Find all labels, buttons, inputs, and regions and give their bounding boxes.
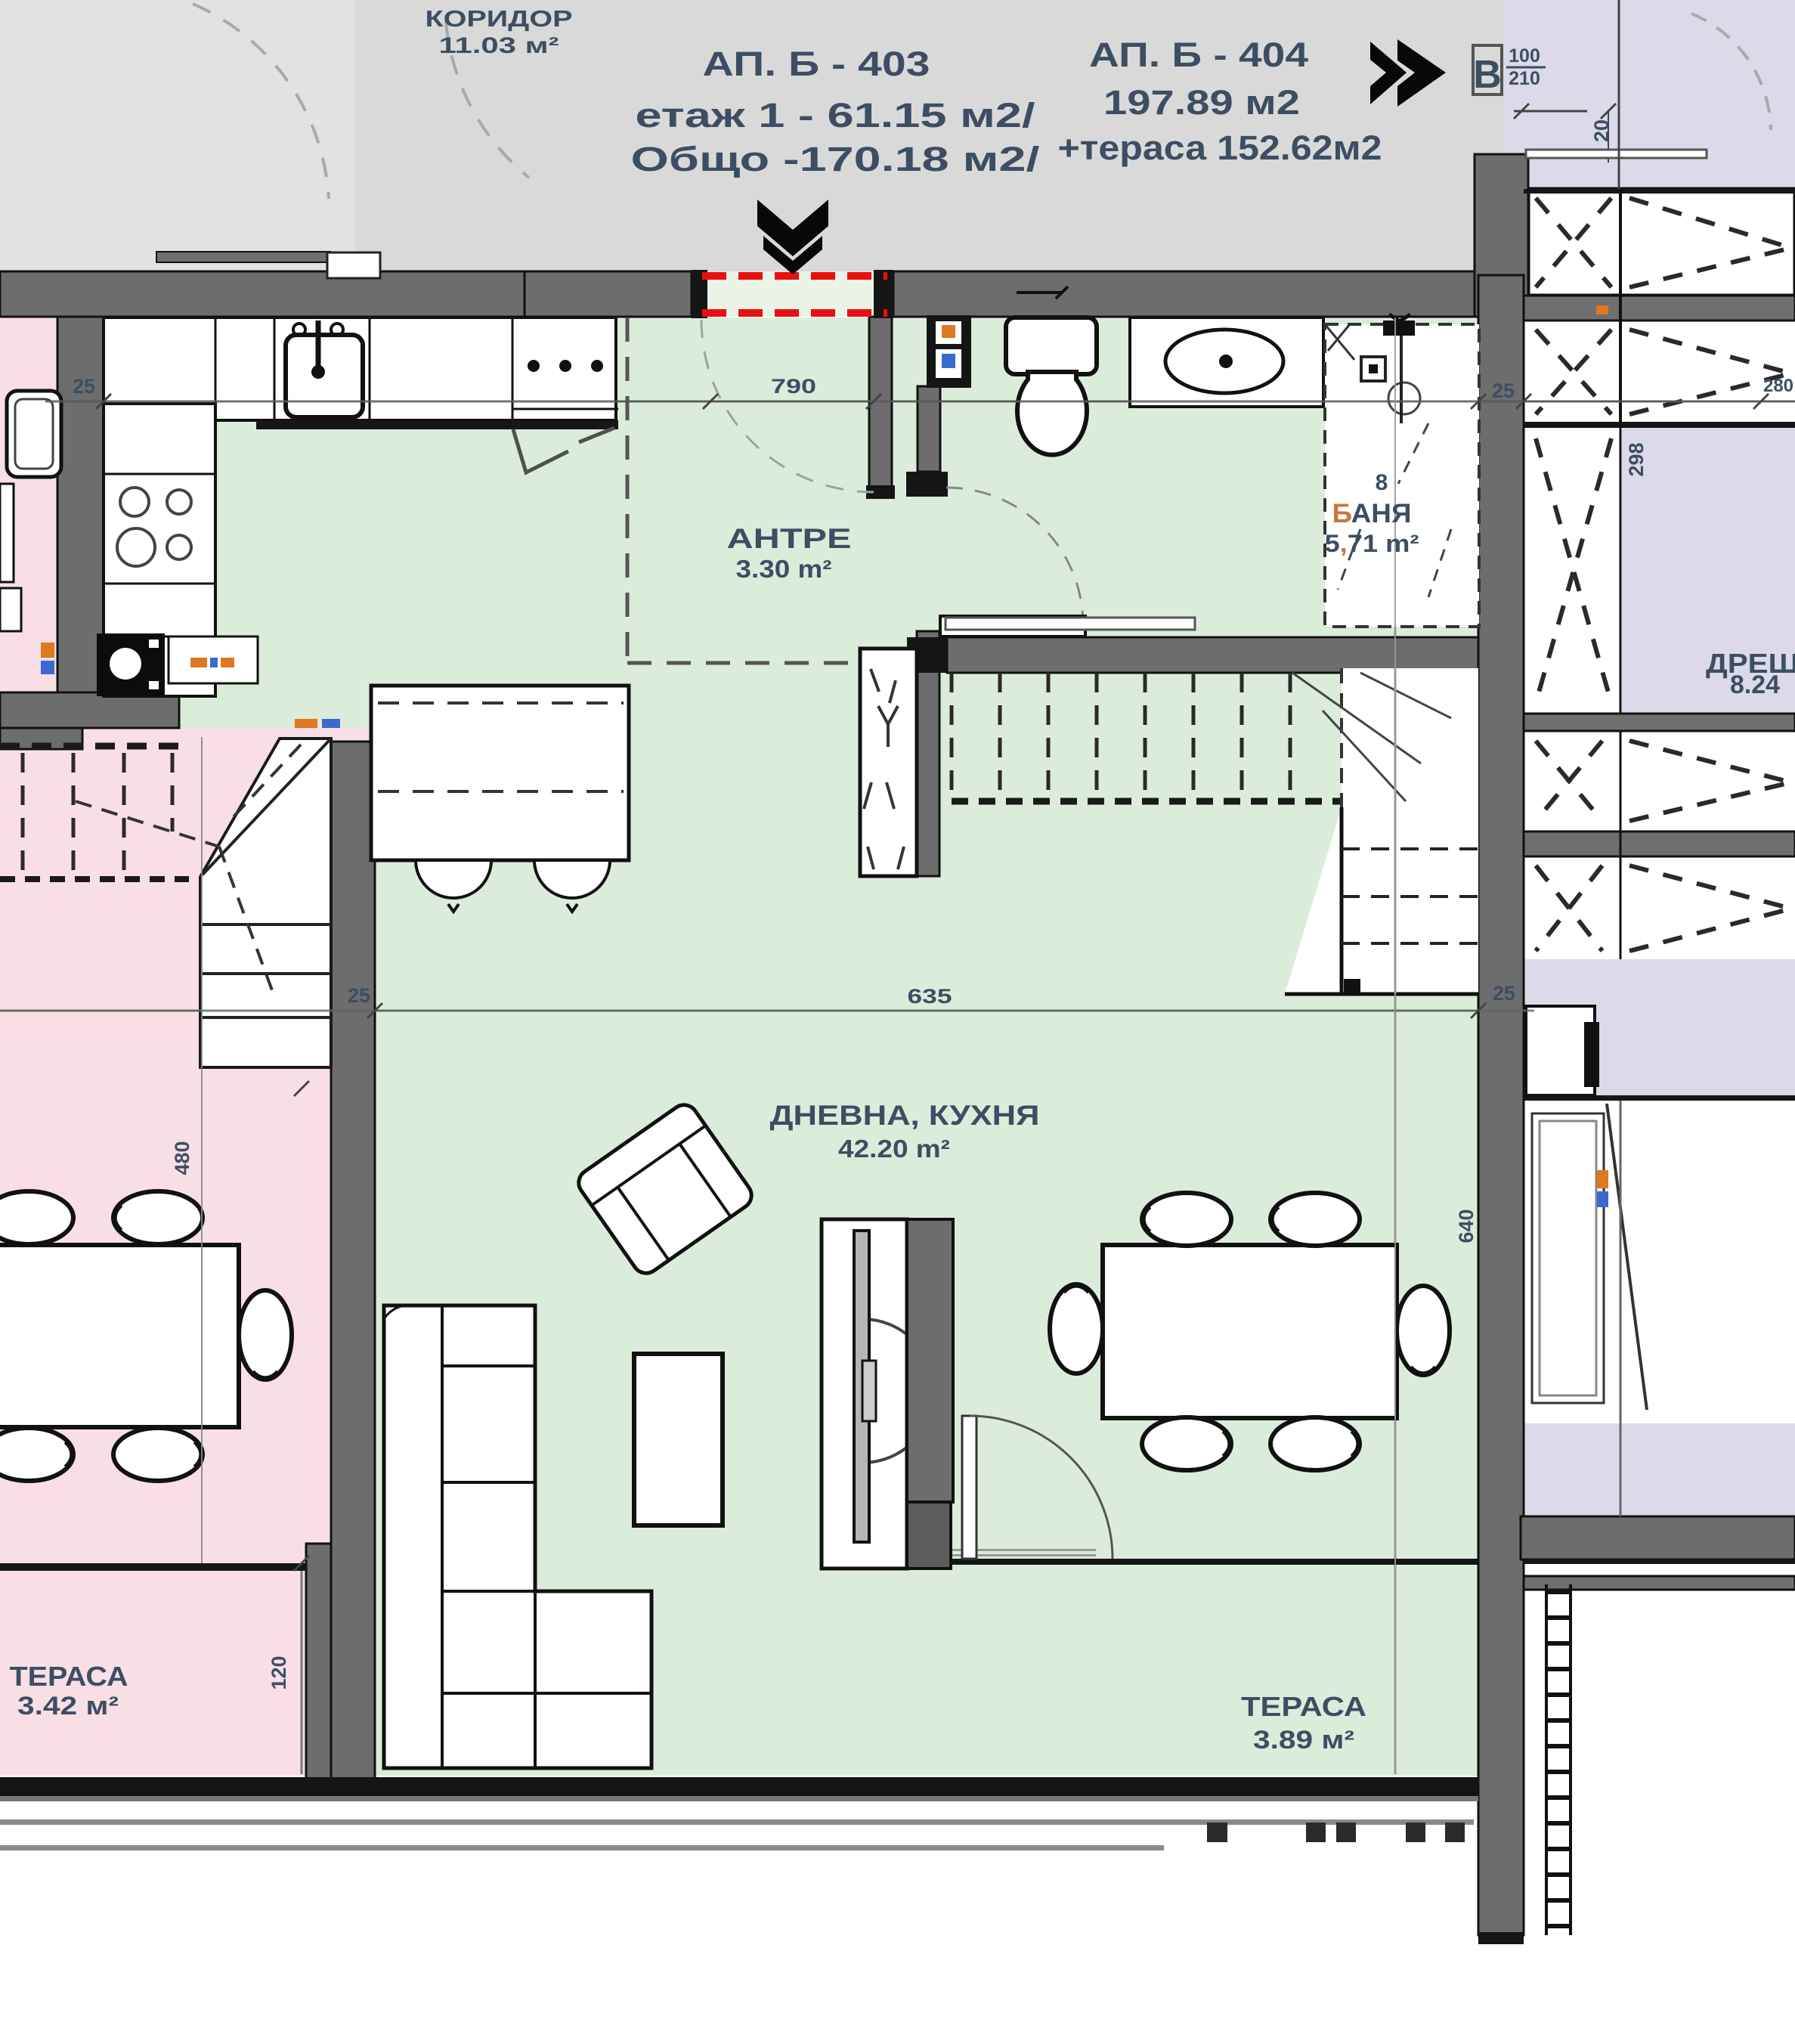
- svg-text:8.24: 8.24: [1730, 670, 1780, 699]
- svg-text:120: 120: [268, 1655, 290, 1689]
- svg-text:25: 25: [73, 375, 95, 398]
- svg-text:БАНЯ: БАНЯ: [1332, 499, 1412, 528]
- svg-text:5,71 m²: 5,71 m²: [1325, 530, 1419, 557]
- svg-text:АНТРЕ: АНТРЕ: [727, 523, 852, 554]
- svg-text:АП. Б - 403: АП. Б - 403: [703, 45, 930, 83]
- svg-text:210: 210: [1509, 68, 1540, 89]
- svg-text:3.42 м²: 3.42 м²: [17, 1692, 119, 1720]
- svg-text:298: 298: [1625, 442, 1648, 476]
- svg-text:ТЕРАСА: ТЕРАСА: [1241, 1691, 1366, 1722]
- svg-text:42.20 m²: 42.20 m²: [838, 1135, 950, 1163]
- svg-text:640: 640: [1455, 1209, 1478, 1243]
- svg-text:280: 280: [1763, 376, 1793, 396]
- svg-text:100: 100: [1509, 45, 1540, 67]
- svg-text:25: 25: [1493, 982, 1515, 1005]
- svg-text:197.89 м2: 197.89 м2: [1103, 83, 1300, 122]
- svg-text:+тераса 152.62м2: +тераса 152.62м2: [1058, 129, 1382, 167]
- svg-text:етаж 1 - 61.15 м2/: етаж 1 - 61.15 м2/: [636, 96, 1036, 135]
- svg-text:8: 8: [1376, 470, 1388, 495]
- svg-text:20: 20: [1590, 119, 1613, 142]
- svg-text:25: 25: [1492, 379, 1515, 402]
- svg-text:3.30 m²: 3.30 m²: [736, 555, 832, 583]
- svg-text:790: 790: [771, 375, 816, 398]
- svg-text:480: 480: [171, 1141, 193, 1175]
- svg-text:ДНЕВНА, КУХНЯ: ДНЕВНА, КУХНЯ: [770, 1100, 1040, 1131]
- svg-text:635: 635: [908, 985, 952, 1008]
- svg-text:11.03 м²: 11.03 м²: [439, 33, 559, 58]
- svg-text:В: В: [1473, 53, 1502, 97]
- svg-text:КОРИДОР: КОРИДОР: [426, 5, 573, 32]
- svg-text:3.89 м²: 3.89 м²: [1253, 1726, 1354, 1754]
- svg-text:25: 25: [348, 984, 370, 1007]
- svg-text:АП. Б - 404: АП. Б - 404: [1089, 36, 1308, 74]
- svg-text:Общо -170.18 м2/: Общо -170.18 м2/: [631, 140, 1041, 178]
- svg-text:ТЕРАСА: ТЕРАСА: [10, 1661, 128, 1692]
